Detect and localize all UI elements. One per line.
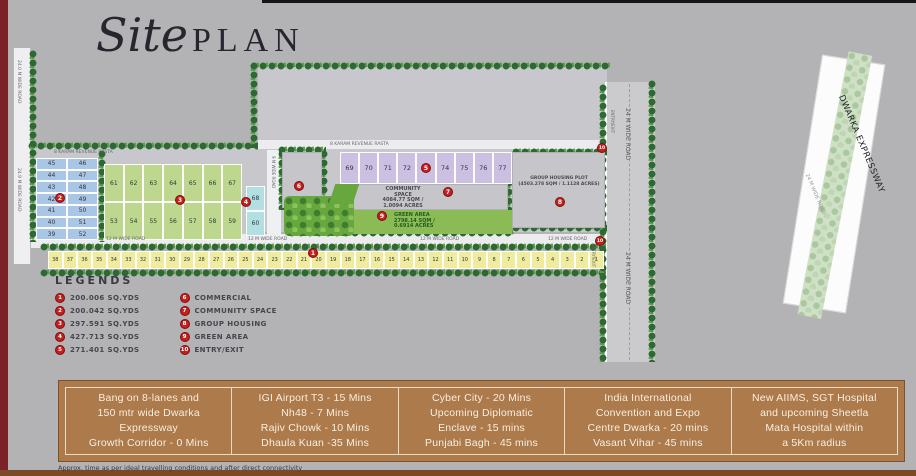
highlight-line: IGI Airport T3 - 15 Mins bbox=[259, 391, 372, 406]
marker-5: 5 bbox=[421, 163, 431, 173]
road-label-24m-right-lower: 24 M WIDE ROAD bbox=[624, 252, 631, 304]
legend-label: GREEN AREA bbox=[195, 333, 249, 341]
plot-cell: 5 bbox=[531, 251, 546, 269]
highlight-line: New AIIMS, SGT Hospital bbox=[752, 391, 877, 406]
plot-cell: 34 bbox=[107, 251, 122, 269]
plot-cell: 65 bbox=[183, 164, 203, 202]
plot-cell: 14 bbox=[399, 251, 414, 269]
plot-cell: 4 bbox=[545, 251, 560, 269]
plot-cell: 60 bbox=[246, 211, 265, 236]
road-label-revenue-rasta: 8 KARAM REVENUE RASTA bbox=[330, 142, 389, 147]
plot-cell: 74 bbox=[436, 152, 455, 184]
plot-cell: 45 bbox=[36, 158, 67, 170]
plot-cell: 61 bbox=[104, 164, 124, 202]
plot-cell: 66 bbox=[203, 164, 223, 202]
plot-cell: 56 bbox=[163, 202, 183, 240]
expressway-panel: 24 M WIDE ROAD DWARKA EXPRESSWAY bbox=[783, 55, 886, 314]
legend-marker: 1 bbox=[55, 293, 65, 303]
plot-cell: 55 bbox=[143, 202, 163, 240]
plot-cell: 33 bbox=[121, 251, 136, 269]
marker-1: 1 bbox=[308, 248, 318, 258]
legend-marker: 5 bbox=[55, 345, 65, 355]
plot-cell: 70 bbox=[359, 152, 378, 184]
plot-cell: 59 bbox=[222, 202, 242, 240]
legend-item: 7 COMMUNITY SPACE bbox=[180, 306, 277, 316]
legend-label: 427.713 SQ.YDS bbox=[70, 333, 140, 341]
community-space-label: COMMUNITYSPACE4084.77 SQM /1.0094 ACRES bbox=[370, 187, 436, 209]
legend-label: 297.591 SQ.YDS bbox=[70, 320, 140, 328]
road-label-24m-left-upper: 24.0 M WIDE ROAD bbox=[16, 60, 21, 103]
legend-item: 8 GROUP HOUSING bbox=[180, 319, 277, 329]
marker-8: 8 bbox=[555, 197, 565, 207]
area-text-line: (4503.278 SQM / 1.1128 ACRES) bbox=[514, 182, 604, 188]
legend-label: COMMERCIAL bbox=[195, 294, 252, 302]
highlight-line: and upcoming Sheetla bbox=[760, 406, 869, 421]
legend-label: GROUP HOUSING bbox=[195, 320, 267, 328]
legend-marker: 7 bbox=[180, 306, 190, 316]
road-label-24m-right-upper: 24 M WIDE ROAD bbox=[624, 108, 631, 160]
marker-4: 4 bbox=[241, 197, 251, 207]
legend-label: COMMUNITY SPACE bbox=[195, 307, 277, 315]
plot-cell: 15 bbox=[384, 251, 399, 269]
plot-cell: 10 bbox=[458, 251, 473, 269]
road-label-internal: 9 M WIDE ROAD bbox=[271, 156, 276, 188]
entry-exit-label: ENTRY/EXIT bbox=[610, 110, 615, 133]
group-housing-label: GROUP HOUSING PLOT(4503.278 SQM / 1.1128… bbox=[514, 176, 604, 188]
legend-marker: 4 bbox=[55, 332, 65, 342]
plot-cell: 71 bbox=[378, 152, 397, 184]
plot-cell: 52 bbox=[67, 228, 98, 240]
legend-marker: 3 bbox=[55, 319, 65, 329]
plot-cell: 27 bbox=[209, 251, 224, 269]
plot-cell: 69 bbox=[340, 152, 359, 184]
plot-cell: 49 bbox=[67, 193, 98, 205]
plot-cell: 41 bbox=[36, 205, 67, 217]
highlight-line: Convention and Expo bbox=[596, 406, 700, 421]
highlight-line: Vasant Vihar - 45 mins bbox=[593, 436, 703, 451]
highlight-line: Upcoming Diplomatic bbox=[430, 406, 533, 421]
plot-cell: 46 bbox=[67, 158, 98, 170]
plot-cell: 30 bbox=[165, 251, 180, 269]
highlight-line: India International bbox=[604, 391, 691, 406]
highlight-line: a 5Km radius bbox=[782, 436, 846, 451]
road-label-revenue-rasta: 8 KARAM REVENUE RASTA bbox=[54, 150, 113, 155]
legend: LEGENDS 1 200.006 SQ.YDS 2 200.042 SQ.YD… bbox=[55, 274, 277, 355]
plot-cell: 43 bbox=[36, 181, 67, 193]
plot-cell: 35 bbox=[92, 251, 107, 269]
highlight-box-expressway: Bang on 8-lanes and150 mtr wide DwarkaEx… bbox=[66, 388, 232, 454]
tree-column bbox=[250, 62, 258, 148]
group-housing-block bbox=[512, 152, 605, 228]
site-plan-poster: SitePLAN 45444342414039 46474849505152 6… bbox=[0, 0, 916, 476]
plot-cell: 58 bbox=[203, 202, 223, 240]
marker-2: 2 bbox=[55, 193, 65, 203]
plot-block-cyan: 6860 bbox=[246, 186, 265, 236]
plot-cell: 50 bbox=[67, 205, 98, 217]
left-border-strip bbox=[0, 0, 8, 476]
highlight-box-hospitals: New AIIMS, SGT Hospitaland upcoming Shee… bbox=[732, 388, 897, 454]
plot-cell: 77 bbox=[493, 152, 512, 184]
page-title: SitePLAN bbox=[96, 8, 305, 62]
highlight-line: Centre Dwarka - 20 mins bbox=[588, 421, 709, 436]
highlights-container: Bang on 8-lanes and150 mtr wide DwarkaEx… bbox=[58, 380, 905, 462]
plot-cell: 26 bbox=[224, 251, 239, 269]
plot-cell: 8 bbox=[487, 251, 502, 269]
plot-cell: 2 bbox=[575, 251, 590, 269]
highlight-line: Nh48 - 7 Mins bbox=[281, 406, 349, 421]
road-label-12m: 12 M WIDE ROAD bbox=[548, 237, 587, 242]
plot-cell: 29 bbox=[180, 251, 195, 269]
marker-6: 6 bbox=[294, 181, 304, 191]
highlights-inner-border: Bang on 8-lanes and150 mtr wide DwarkaEx… bbox=[65, 387, 898, 455]
legend-item: 5 271.401 SQ.YDS bbox=[55, 345, 140, 355]
legend-marker: 10 bbox=[180, 345, 190, 355]
plot-block-yellow: 3837363534333231302928272625242322212019… bbox=[48, 251, 604, 269]
green-top-row: 61626364656667 bbox=[104, 164, 242, 202]
legend-item: 10 ENTRY/EXIT bbox=[180, 345, 277, 355]
legend-marker: 8 bbox=[180, 319, 190, 329]
top-border-line bbox=[262, 0, 916, 3]
marker-10-entry-upper: 10 bbox=[597, 143, 607, 153]
plot-cell: 11 bbox=[443, 251, 458, 269]
legend-marker: 9 bbox=[180, 332, 190, 342]
plot-cell: 12 bbox=[428, 251, 443, 269]
entry-exit-label: ENTRY/EXIT bbox=[591, 244, 596, 267]
legend-item: 6 COMMERCIAL bbox=[180, 293, 277, 303]
plot-cell: 24 bbox=[253, 251, 268, 269]
tree-row bbox=[40, 243, 606, 251]
area-text-line: 1.0094 ACRES bbox=[370, 204, 436, 210]
blue-right-column: 46474849505152 bbox=[67, 158, 98, 240]
road-label-12m: 12 M WIDE ROAD bbox=[248, 237, 287, 242]
green-area-label: GREEN AREA2798.14 SQM /0.6914 ACRES bbox=[394, 213, 470, 230]
highlight-line: Rajiv Chowk - 10 Mins bbox=[261, 421, 370, 436]
plot-cell: 28 bbox=[194, 251, 209, 269]
plot-cell: 31 bbox=[150, 251, 165, 269]
highlight-line: Bang on 8-lanes and bbox=[98, 391, 199, 406]
legend-label: 271.401 SQ.YDS bbox=[70, 346, 140, 354]
plot-cell: 32 bbox=[136, 251, 151, 269]
legend-label: 200.042 SQ.YDS bbox=[70, 307, 140, 315]
highlight-line: 150 mtr wide Dwarka bbox=[97, 406, 199, 421]
plot-cell: 57 bbox=[183, 202, 203, 240]
legend-item: 2 200.042 SQ.YDS bbox=[55, 306, 140, 316]
title-script-word: Site bbox=[96, 8, 188, 62]
legend-item: 9 GREEN AREA bbox=[180, 332, 277, 342]
plot-cell: 3 bbox=[560, 251, 575, 269]
marker-9: 9 bbox=[377, 211, 387, 221]
plot-cell: 54 bbox=[124, 202, 144, 240]
highlight-line: Mata Hospital within bbox=[765, 421, 863, 436]
plot-cell: 53 bbox=[104, 202, 124, 240]
plot-cell: 37 bbox=[63, 251, 78, 269]
legend-marker: 6 bbox=[180, 293, 190, 303]
plot-cell: 7 bbox=[501, 251, 516, 269]
plot-cell: 51 bbox=[67, 217, 98, 229]
plot-cell: 67 bbox=[222, 164, 242, 202]
plot-cell: 13 bbox=[414, 251, 429, 269]
plot-cell: 36 bbox=[77, 251, 92, 269]
plot-cell: 47 bbox=[67, 170, 98, 182]
legend-columns: 1 200.006 SQ.YDS 2 200.042 SQ.YDS 3 297.… bbox=[55, 293, 277, 355]
marker-10-entry-lower: 10 bbox=[595, 236, 605, 246]
plot-cell: 44 bbox=[36, 170, 67, 182]
green-bottom-row: 53545556575859 bbox=[104, 202, 242, 240]
plot-block-blue: 45444342414039 46474849505152 bbox=[36, 158, 98, 240]
tree-row bbox=[28, 142, 258, 150]
plot-cell: 38 bbox=[48, 251, 63, 269]
legend-label: 200.006 SQ.YDS bbox=[70, 294, 140, 302]
plot-cell: 75 bbox=[455, 152, 474, 184]
plot-cell: 22 bbox=[282, 251, 297, 269]
plot-cell: 19 bbox=[326, 251, 341, 269]
highlight-box-convention: India InternationalConvention and ExpoCe… bbox=[565, 388, 731, 454]
legend-item: 4 427.713 SQ.YDS bbox=[55, 332, 140, 342]
plot-cell: 16 bbox=[370, 251, 385, 269]
plot-cell: 23 bbox=[267, 251, 282, 269]
legend-column-sizes: 1 200.006 SQ.YDS 2 200.042 SQ.YDS 3 297.… bbox=[55, 293, 140, 355]
highlight-line: Punjabi Bagh - 45 mins bbox=[425, 436, 538, 451]
tree-column bbox=[648, 80, 656, 362]
marker-7: 7 bbox=[443, 187, 453, 197]
plot-cell: 9 bbox=[472, 251, 487, 269]
plot-block-green: 61626364656667 53545556575859 bbox=[104, 164, 242, 240]
plot-cell: 62 bbox=[124, 164, 144, 202]
highlight-line: Enclave - 15 mins bbox=[438, 421, 525, 436]
tree-row bbox=[250, 62, 610, 70]
footnote: Approx. time as per ideal travelling con… bbox=[58, 464, 302, 472]
plot-cell: 18 bbox=[341, 251, 356, 269]
road-label-12m: 12 M WIDE ROAD bbox=[106, 237, 145, 242]
highlight-line: Cyber City - 20 Mins bbox=[432, 391, 531, 406]
title-plan-word: PLAN bbox=[192, 22, 305, 59]
highlight-line: Expressway bbox=[119, 421, 178, 436]
legend-marker: 2 bbox=[55, 306, 65, 316]
road-label-12m: 12 M WIDE ROAD bbox=[420, 237, 459, 242]
plot-cell: 63 bbox=[143, 164, 163, 202]
legend-item: 1 200.006 SQ.YDS bbox=[55, 293, 140, 303]
highlight-line: Growth Corridor - 0 Mins bbox=[89, 436, 209, 451]
plot-cell: 17 bbox=[355, 251, 370, 269]
road-label-24m-left-lower: 24.9 M WIDE ROAD bbox=[16, 168, 21, 211]
plot-cell: 76 bbox=[474, 152, 493, 184]
legend-label: ENTRY/EXIT bbox=[195, 346, 245, 354]
marker-3: 3 bbox=[175, 195, 185, 205]
legend-column-uses: 6 COMMERCIAL 7 COMMUNITY SPACE 8 GROUP H… bbox=[180, 293, 277, 355]
legend-heading: LEGENDS bbox=[55, 274, 277, 287]
legend-item: 3 297.591 SQ.YDS bbox=[55, 319, 140, 329]
plot-cell: 39 bbox=[36, 228, 67, 240]
highlight-box-airport: IGI Airport T3 - 15 MinsNh48 - 7 MinsRaj… bbox=[232, 388, 398, 454]
plot-cell: 6 bbox=[516, 251, 531, 269]
plot-cell: 72 bbox=[397, 152, 416, 184]
plot-cell: 25 bbox=[238, 251, 253, 269]
plot-cell: 48 bbox=[67, 181, 98, 193]
plot-cell: 40 bbox=[36, 217, 67, 229]
highlight-line: Dhaula Kuan -35 Mins bbox=[261, 436, 369, 451]
area-text-line: 0.6914 ACRES bbox=[394, 224, 470, 230]
highlight-box-cybercity: Cyber City - 20 MinsUpcoming DiplomaticE… bbox=[399, 388, 565, 454]
